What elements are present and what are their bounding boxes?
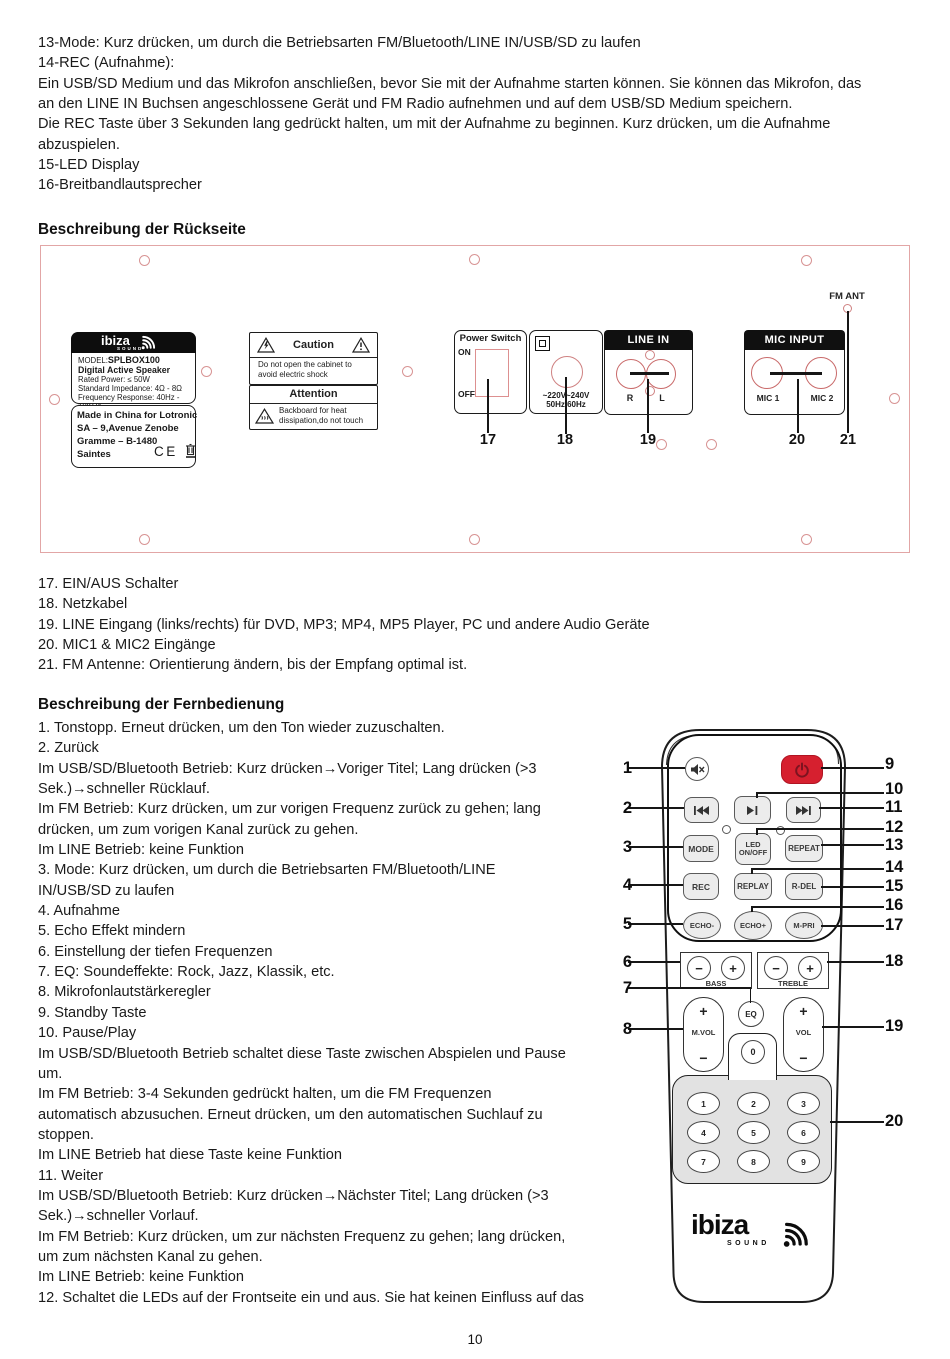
bass-plus-button: + (721, 956, 745, 980)
caution-title: Caution (293, 339, 334, 351)
made-line: Saintes (77, 448, 197, 461)
brand-signal-icon (783, 1221, 813, 1248)
warning-icon (352, 337, 370, 353)
weee-bin-icon (184, 443, 197, 460)
rear-list-item: 19. LINE Eingang (links/rechts) für DVD,… (38, 615, 650, 635)
callout-line-8 (628, 1028, 683, 1030)
callout-line-16 (751, 906, 884, 908)
rear-list: 17. EIN/AUS Schalter 18. Netzkabel 19. L… (38, 574, 650, 676)
digit-7-button: 7 (687, 1150, 720, 1173)
made-in-text: Made in China for Lotronic SA – 9,Avenue… (77, 409, 197, 461)
remote-desc-line: automatisch abzusuchen. Erneut drücken, … (38, 1105, 584, 1125)
callout-line-7 (628, 987, 751, 989)
callout-number-8: 8 (612, 1020, 632, 1038)
ibiza-logo-sub: SOUND (117, 346, 143, 351)
mic2-label: MIC 2 (802, 393, 842, 403)
remote-desc-line: stoppen. (38, 1125, 584, 1145)
vol-label: VOL (784, 1028, 823, 1037)
power-icon (794, 762, 810, 778)
screw-hole (469, 534, 480, 545)
callout-line-2 (628, 807, 684, 809)
remote-desc-line: 12. Schaltet die LEDs auf der Frontseite… (38, 1288, 584, 1308)
model-number: SPLBOX100 (108, 355, 160, 365)
rear-list-item: 18. Netzkabel (38, 594, 650, 614)
mvol-minus: − (684, 1050, 723, 1066)
leader-17 (487, 379, 489, 433)
rdel-button: R-DEL (785, 873, 823, 900)
screw-hole (801, 255, 812, 266)
remote-desc-line: 9. Standby Taste (38, 1003, 584, 1023)
mic1-label: MIC 1 (748, 393, 788, 403)
remote-desc-line: um zum nächsten Kanal zu gehen. (38, 1247, 584, 1267)
r-label: R (622, 393, 638, 403)
rec-button: REC (683, 873, 719, 900)
mvol-plus: + (684, 1003, 723, 1019)
callout-17: 17 (474, 432, 502, 448)
brand-name: ibiza (691, 1209, 748, 1241)
screw-hole (139, 255, 150, 266)
remote-desc-line: Im USB/SD/Bluetooth Betrieb: Kurz drücke… (38, 759, 584, 779)
play-pause-button (734, 796, 771, 824)
intro-line: 13-Mode: Kurz drücken, um durch die Betr… (38, 33, 861, 53)
callout-20: 20 (783, 432, 811, 448)
callout-line-1 (628, 767, 685, 769)
screw-hole (402, 366, 413, 377)
callout-line-6 (628, 961, 680, 963)
attention-label: Attention Backboard for heat dissipation… (249, 385, 378, 430)
caution-text: avoid electric shock (258, 370, 377, 380)
remote-desc-line: 1. Tonstopp. Erneut drücken, um den Ton … (38, 718, 584, 738)
callout-line-18 (827, 961, 884, 963)
made-line: Gramme – B-1480 (77, 435, 197, 448)
mute-button (685, 757, 709, 781)
onoff-label: ON/OFF (739, 849, 767, 858)
l-label: L (654, 393, 670, 403)
callout-number-20: 20 (885, 1112, 903, 1130)
next-icon (795, 805, 812, 816)
line-in-title: LINE IN (604, 330, 693, 350)
remote-desc-line: Im LINE Betrieb: keine Funktion (38, 840, 584, 860)
bass-group: − + BASS (680, 952, 752, 989)
manual-page: 13-Mode: Kurz drücken, um durch die Betr… (0, 0, 950, 1359)
digit-1-button: 1 (687, 1092, 720, 1115)
small-hole (645, 350, 655, 360)
digit-6-button: 6 (787, 1121, 820, 1144)
ibiza-logo-header: ibiza SOUND (71, 332, 196, 353)
led-onoff-button: LED ON/OFF (735, 833, 771, 865)
callout-number-3: 3 (612, 838, 632, 856)
callout-number-18: 18 (885, 952, 903, 970)
impedance: Standard Impedance: 4Ω - 8Ω (78, 384, 182, 393)
callout-line-14 (751, 868, 884, 870)
callout-number-19: 19 (885, 1017, 903, 1035)
ce-mark: CE (154, 444, 178, 459)
digit-9-button: 9 (787, 1150, 820, 1173)
callout-number-9: 9 (885, 755, 894, 773)
callout-number-12: 12 (885, 818, 903, 836)
class2-icon (535, 336, 550, 351)
callout-number-2: 2 (612, 799, 632, 817)
rear-list-item: 17. EIN/AUS Schalter (38, 574, 650, 594)
digit-4-button: 4 (687, 1121, 720, 1144)
electric-hazard-icon (257, 337, 275, 353)
intro-line: Ein USB/SD Medium und das Mikrofon ansch… (38, 74, 861, 94)
screw-hole (801, 534, 812, 545)
bass-minus-button: − (687, 956, 711, 980)
indicator-dot (722, 825, 731, 834)
mic-input-panel: MIC INPUT MIC 1 MIC 2 (744, 330, 845, 415)
screw-hole (139, 534, 150, 545)
digit-3-button: 3 (787, 1092, 820, 1115)
ibiza-signal-icon (141, 335, 158, 350)
product-name: Digital Active Speaker (78, 365, 170, 375)
callout-18: 18 (551, 432, 579, 448)
remote-section-heading: Beschreibung der Fernbedienung (38, 696, 284, 714)
callout-number-1: 1 (612, 759, 632, 777)
screw-hole (706, 439, 717, 450)
rocker-switch (475, 349, 509, 397)
rear-section-heading: Beschreibung der Rückseite (38, 221, 246, 239)
rating-label: ibiza SOUND MODEL:SPLBOX100 Digital Acti… (71, 332, 196, 404)
vol-plus: + (784, 1003, 823, 1019)
remote-desc-line: um. (38, 1064, 584, 1084)
page-number: 10 (0, 1332, 950, 1347)
rear-list-item: 20. MIC1 & MIC2 Eingänge (38, 635, 650, 655)
callout-line-12 (756, 828, 758, 835)
play-pause-icon (746, 805, 759, 816)
callout-line-14 (751, 868, 753, 874)
rear-list-item: 21. FM Antenne: Orientierung ändern, bis… (38, 655, 650, 675)
remote-brand-logo: ibiza SOUND (685, 1209, 825, 1251)
screw-hole (201, 366, 212, 377)
treble-plus-button: + (798, 956, 822, 980)
rear-panel-diagram: ibiza SOUND MODEL:SPLBOX100 Digital Acti… (40, 245, 910, 553)
attention-text: Backboard for heat (279, 406, 363, 416)
callout-line-16 (751, 906, 753, 912)
callout-line-10 (756, 792, 884, 794)
fm-ant-label: FM ANT (817, 291, 877, 302)
callout-line-17 (821, 925, 884, 927)
brand-sub: SOUND (727, 1240, 770, 1247)
mic-input-title: MIC INPUT (744, 330, 845, 350)
model-line: MODEL:SPLBOX100 (78, 355, 160, 365)
callout-number-14: 14 (885, 858, 903, 876)
attention-text: dissipation,do not touch (279, 416, 363, 426)
remote-desc-line: Im FM Betrieb: 3-4 Sekunden gedrückt hal… (38, 1084, 584, 1104)
remote-desc-line: 3. Mode: Kurz drücken, um durch die Betr… (38, 860, 584, 880)
remote-desc-line: Sek.)→schneller Vorlauf. (38, 1206, 584, 1226)
mic-volume-control: + M.VOL − (683, 997, 724, 1072)
leader-bar (770, 372, 822, 375)
digit-8-button: 8 (737, 1150, 770, 1173)
mvol-label: M.VOL (684, 1028, 723, 1037)
remote-control-diagram: MODE LED ON/OFF REPEAT REC REPLAY R-DEL … (600, 715, 950, 1335)
callout-number-16: 16 (885, 896, 903, 914)
callout-number-4: 4 (612, 876, 632, 894)
callout-line-3 (628, 846, 683, 848)
mode-button: MODE (683, 835, 719, 862)
callout-number-5: 5 (612, 915, 632, 933)
power-switch: Power Switch ON OFF (454, 330, 527, 414)
callout-line-5 (628, 923, 683, 925)
remote-desc-line: Im LINE Betrieb hat diese Taste keine Fu… (38, 1145, 584, 1165)
next-button (786, 797, 821, 823)
intro-line: an den LINE IN Buchsen angeschlossene Ge… (38, 94, 861, 114)
remote-desc-line: 8. Mikrofonlautstärkeregler (38, 982, 584, 1002)
mute-icon (690, 763, 705, 776)
treble-minus-button: − (764, 956, 788, 980)
remote-desc-line: Im USB/SD/Bluetooth Betrieb schaltet die… (38, 1044, 584, 1064)
callout-line-19 (822, 1026, 884, 1028)
previous-icon (693, 805, 710, 816)
callout-number-11: 11 (885, 798, 902, 816)
previous-button (684, 797, 719, 823)
replay-button: REPLAY (734, 873, 772, 900)
callout-number-17: 17 (885, 916, 903, 934)
vol-minus: − (784, 1050, 823, 1066)
intro-line: Die REC Taste über 3 Sekunden lang gedrü… (38, 114, 861, 134)
remote-desc-line: Im LINE Betrieb: keine Funktion (38, 1267, 584, 1287)
leader-bar (630, 372, 669, 375)
attention-title: Attention (250, 386, 377, 404)
remote-desc-line: 10. Pause/Play (38, 1023, 584, 1043)
repeat-button: REPEAT (785, 835, 823, 862)
echo-minus-button: ECHO- (683, 912, 721, 939)
remote-desc-line: 4. Aufnahme (38, 901, 584, 921)
remote-desc-line: 11. Weiter (38, 1166, 584, 1186)
made-in-label: Made in China for Lotronic SA – 9,Avenue… (71, 405, 196, 468)
hot-surface-icon (255, 408, 274, 424)
leader-21 (847, 311, 849, 433)
remote-desc-line: 7. EQ: Soundeffekte: Rock, Jazz, Klassik… (38, 962, 584, 982)
callout-line-9 (821, 767, 884, 769)
power-switch-title: Power Switch (455, 333, 526, 344)
intro-line: 14-REC (Aufnahme): (38, 53, 861, 73)
power-socket (551, 356, 583, 388)
leader-20 (797, 379, 799, 433)
remote-desc-line: Im FM Betrieb: Kurz drücken, um zur näch… (38, 1227, 584, 1247)
remote-desc-line: Im USB/SD/Bluetooth Betrieb: Kurz drücke… (38, 1186, 584, 1206)
callout-number-6: 6 (612, 953, 632, 971)
callout-line-13 (821, 844, 884, 846)
digit-5-button: 5 (737, 1121, 770, 1144)
treble-label: TREBLE (758, 979, 828, 988)
callout-number-7: 7 (612, 979, 632, 997)
intro-line: abzuspielen. (38, 135, 861, 155)
remote-desc-line: 2. Zurück (38, 738, 584, 758)
remote-desc-line: 6. Einstellung der tiefen Frequenzen (38, 942, 584, 962)
callout-line-10 (756, 792, 758, 798)
callout-line-4 (628, 884, 683, 886)
leader-19 (647, 379, 649, 433)
callout-number-13: 13 (885, 836, 903, 854)
made-line: SA – 9,Avenue Zenobe (77, 422, 197, 435)
remote-desc-line: Sek.)→schneller Rücklauf. (38, 779, 584, 799)
screw-hole (889, 393, 900, 404)
off-label: OFF (458, 389, 475, 399)
remote-desc-line: IN/USB/SD zu laufen (38, 881, 584, 901)
power-button (781, 755, 823, 784)
callout-number-10: 10 (885, 780, 903, 798)
intro-text: 13-Mode: Kurz drücken, um durch die Betr… (38, 33, 861, 196)
intro-line: 15-LED Display (38, 155, 861, 175)
callout-line-15 (821, 886, 884, 888)
caution-label: Caution Do not open the cabinet to avoid… (249, 332, 378, 385)
volume-control: + VOL − (783, 997, 824, 1072)
remote-desc-line: 5. Echo Effekt mindern (38, 921, 584, 941)
rated-power: Rated Power: ≤ 50W (78, 375, 150, 384)
remote-description: 1. Tonstopp. Erneut drücken, um den Ton … (38, 718, 584, 1308)
callout-21: 21 (834, 432, 862, 448)
digit-2-button: 2 (737, 1092, 770, 1115)
callout-number-15: 15 (885, 877, 903, 895)
made-line: Made in China for Lotronic (77, 409, 197, 422)
callout-19: 19 (634, 432, 662, 448)
callout-line-7 (750, 987, 752, 1003)
callout-line-20 (830, 1121, 884, 1123)
mpri-button: M-PRI (785, 912, 823, 939)
eq-button: EQ (738, 1001, 764, 1027)
treble-group: − + TREBLE (757, 952, 829, 989)
digit-0-button: 0 (741, 1040, 765, 1064)
remote-desc-line: drücken, um zum vorigen Kanal zurück zu … (38, 820, 584, 840)
caution-text: Do not open the cabinet to (258, 360, 377, 370)
callout-line-11 (819, 807, 884, 809)
callout-line-12 (756, 828, 884, 830)
screw-hole (469, 254, 480, 265)
intro-line: 16-Breitbandlautsprecher (38, 175, 861, 195)
leader-18 (565, 377, 567, 434)
screw-hole (49, 394, 60, 405)
echo-plus-button: ECHO+ (734, 911, 772, 940)
remote-desc-line: Im FM Betrieb: Kurz drücken, um zur vori… (38, 799, 584, 819)
on-label: ON (458, 347, 471, 357)
